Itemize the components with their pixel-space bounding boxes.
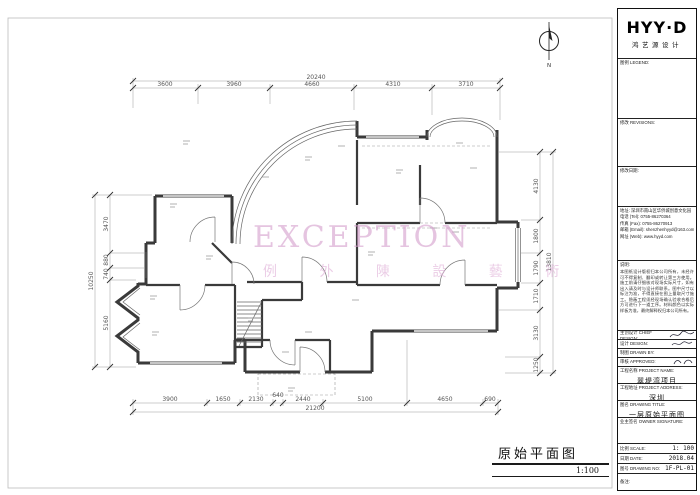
- dim-label: 690: [484, 396, 496, 403]
- design-row: 设计 DESIGN:: [618, 340, 696, 349]
- dim-label: 3900: [162, 396, 177, 403]
- drawing-no-label: 图号 DRAWING NO:: [620, 466, 660, 472]
- dim-label: 5100: [357, 396, 372, 403]
- dim-label: 1250: [533, 357, 540, 372]
- email-value: shenzhenhyyd@163.com: [646, 227, 694, 232]
- web-value: www.hyyd.com: [644, 234, 673, 239]
- project-address-label: 工程地址 PROJECT ADDRESS:: [620, 385, 694, 391]
- dim-label: 20240: [306, 74, 325, 81]
- notes-label: 说明:: [620, 262, 694, 268]
- tel-value: 0755-86270364: [641, 214, 671, 219]
- drawing-no-row: 图号 DRAWING NO: 1F-PL-01: [618, 464, 696, 474]
- company-logo-subtitle: 鸿艺源设计: [632, 39, 682, 49]
- dim-label: 4310: [385, 81, 400, 88]
- signature-chief: [668, 331, 694, 339]
- interior-walls: [146, 140, 497, 372]
- design-label: 设计 DESIGN:: [620, 341, 648, 347]
- title-underline-thin: [492, 476, 609, 477]
- drawing-title-block: 原始平面图 1:100: [492, 443, 609, 477]
- approved-row: 审核 APPROVED:: [618, 358, 696, 367]
- dim-label: 3470: [103, 216, 110, 231]
- remark-row: 备注:: [618, 474, 696, 490]
- revision-date-label: 修改日期:: [620, 168, 694, 174]
- drawing-no-value: 1F-PL-01: [665, 465, 694, 472]
- revision-date-section: 修改日期:: [618, 167, 696, 207]
- project-name-label: 工程名称 PROJECT NAME:: [620, 368, 694, 374]
- fax-value: 0755-86270913: [642, 221, 672, 226]
- remark-label: 备注:: [620, 479, 630, 485]
- project-address-section: 工程地址 PROJECT ADDRESS: 深圳: [618, 384, 696, 401]
- dim-label: 1800: [533, 228, 540, 243]
- dim-label: 3600: [157, 81, 172, 88]
- drawing-scale: 1:100: [492, 465, 609, 476]
- approved-label: 审核 APPROVED:: [620, 359, 656, 365]
- logo-section: HYY·D 鸿艺源设计: [618, 9, 696, 59]
- drawing-title-section: 图名 DRAWING TITLE: 一层原始平面图: [618, 401, 696, 418]
- scale-value: 1: 100: [672, 445, 694, 452]
- dim-label: 4650: [437, 396, 452, 403]
- tel-label: 电话 (Tel):: [620, 214, 639, 219]
- drawn-by-row: 制图 DRAWN BY:: [618, 349, 696, 358]
- address-label: 地址:: [620, 208, 630, 213]
- watermark-subtext: 例 外 陳 設 藝 術: [263, 261, 578, 281]
- revisions-label: 修改 REVISIONS:: [620, 120, 694, 126]
- scale-row: 比例 SCALE: 1: 100: [618, 444, 696, 454]
- scale-label: 比例 SCALE:: [620, 446, 646, 452]
- owner-signature-label: 业主签名 OWNER SIGNATURE:: [620, 419, 694, 425]
- dim-label: 2130: [248, 396, 263, 403]
- contact-section: 地址: 深圳市南山区华侨城创意文化园 电话 (Tel): 0755-862703…: [618, 207, 696, 261]
- email-label: 邮箱 (Email):: [620, 227, 645, 232]
- title-block: HYY·D 鸿艺源设计 图例 LEGEND: 修改 REVISIONS: 修改日…: [617, 8, 697, 491]
- chief-design-label: 主创设计 CHIEF DESIGN:: [620, 330, 668, 341]
- drawn-by-label: 制图 DRAWN BY:: [620, 350, 654, 356]
- dim-label: 1710: [533, 288, 540, 303]
- dim-label: 4660: [304, 81, 319, 88]
- dim-label: 10250: [88, 271, 95, 290]
- dim-label: 640: [272, 392, 284, 399]
- date-row: 日期 DATE: 2018.04: [618, 454, 696, 464]
- dim-label: 3710: [458, 81, 473, 88]
- notes-text: 本图纸设计版权归本公司所有，未经许可不得复制、翻印或转让第三方使用。施工前请仔细…: [620, 269, 694, 313]
- watermark-text: EXCEPTION: [253, 220, 470, 255]
- project-name-section: 工程名称 PROJECT NAME: 翠堤湾项目: [618, 367, 696, 384]
- dim-label: 3960: [226, 81, 241, 88]
- dim-label: 1650: [215, 396, 230, 403]
- dim-label: 5160: [103, 315, 110, 330]
- drawing-title: 原始平面图: [492, 443, 609, 462]
- dim-label: 4130: [533, 178, 540, 193]
- dim-label: 880: [103, 254, 110, 266]
- revisions-section: 修改 REVISIONS:: [618, 119, 696, 167]
- date-label: 日期 DATE:: [620, 456, 643, 462]
- dim-label: 2440: [295, 396, 310, 403]
- north-label: N: [547, 63, 551, 69]
- dim-label: 3130: [533, 325, 540, 340]
- signature-design: [670, 340, 694, 348]
- north-arrow-icon: N: [540, 22, 559, 69]
- dim-label: 740: [103, 268, 110, 280]
- date-value: 2018.04: [669, 455, 694, 462]
- chief-design-row: 主创设计 CHIEF DESIGN:: [618, 331, 696, 340]
- company-logo: HYY·D: [627, 18, 688, 37]
- signature-approved: [672, 358, 694, 366]
- owner-signature-section: 业主签名 OWNER SIGNATURE:: [618, 418, 696, 444]
- legend-section: 图例 LEGEND:: [618, 59, 696, 119]
- cad-sheet: .w{stroke:#3a3a3a;stroke-width:3;fill:no…: [0, 0, 700, 495]
- legend-label: 图例 LEGEND:: [620, 60, 694, 66]
- web-label: 网址 (Web):: [620, 234, 643, 239]
- drawing-title-label: 图名 DRAWING TITLE:: [620, 402, 694, 408]
- fax-label: 传真 (Fax):: [620, 221, 641, 226]
- notes-section: 说明: 本图纸设计版权归本公司所有，未经许可不得复制、翻印或转让第三方使用。施工…: [618, 261, 696, 331]
- address-value: 深圳市南山区华侨城创意文化园: [631, 208, 691, 213]
- dim-label: 21200: [305, 405, 324, 412]
